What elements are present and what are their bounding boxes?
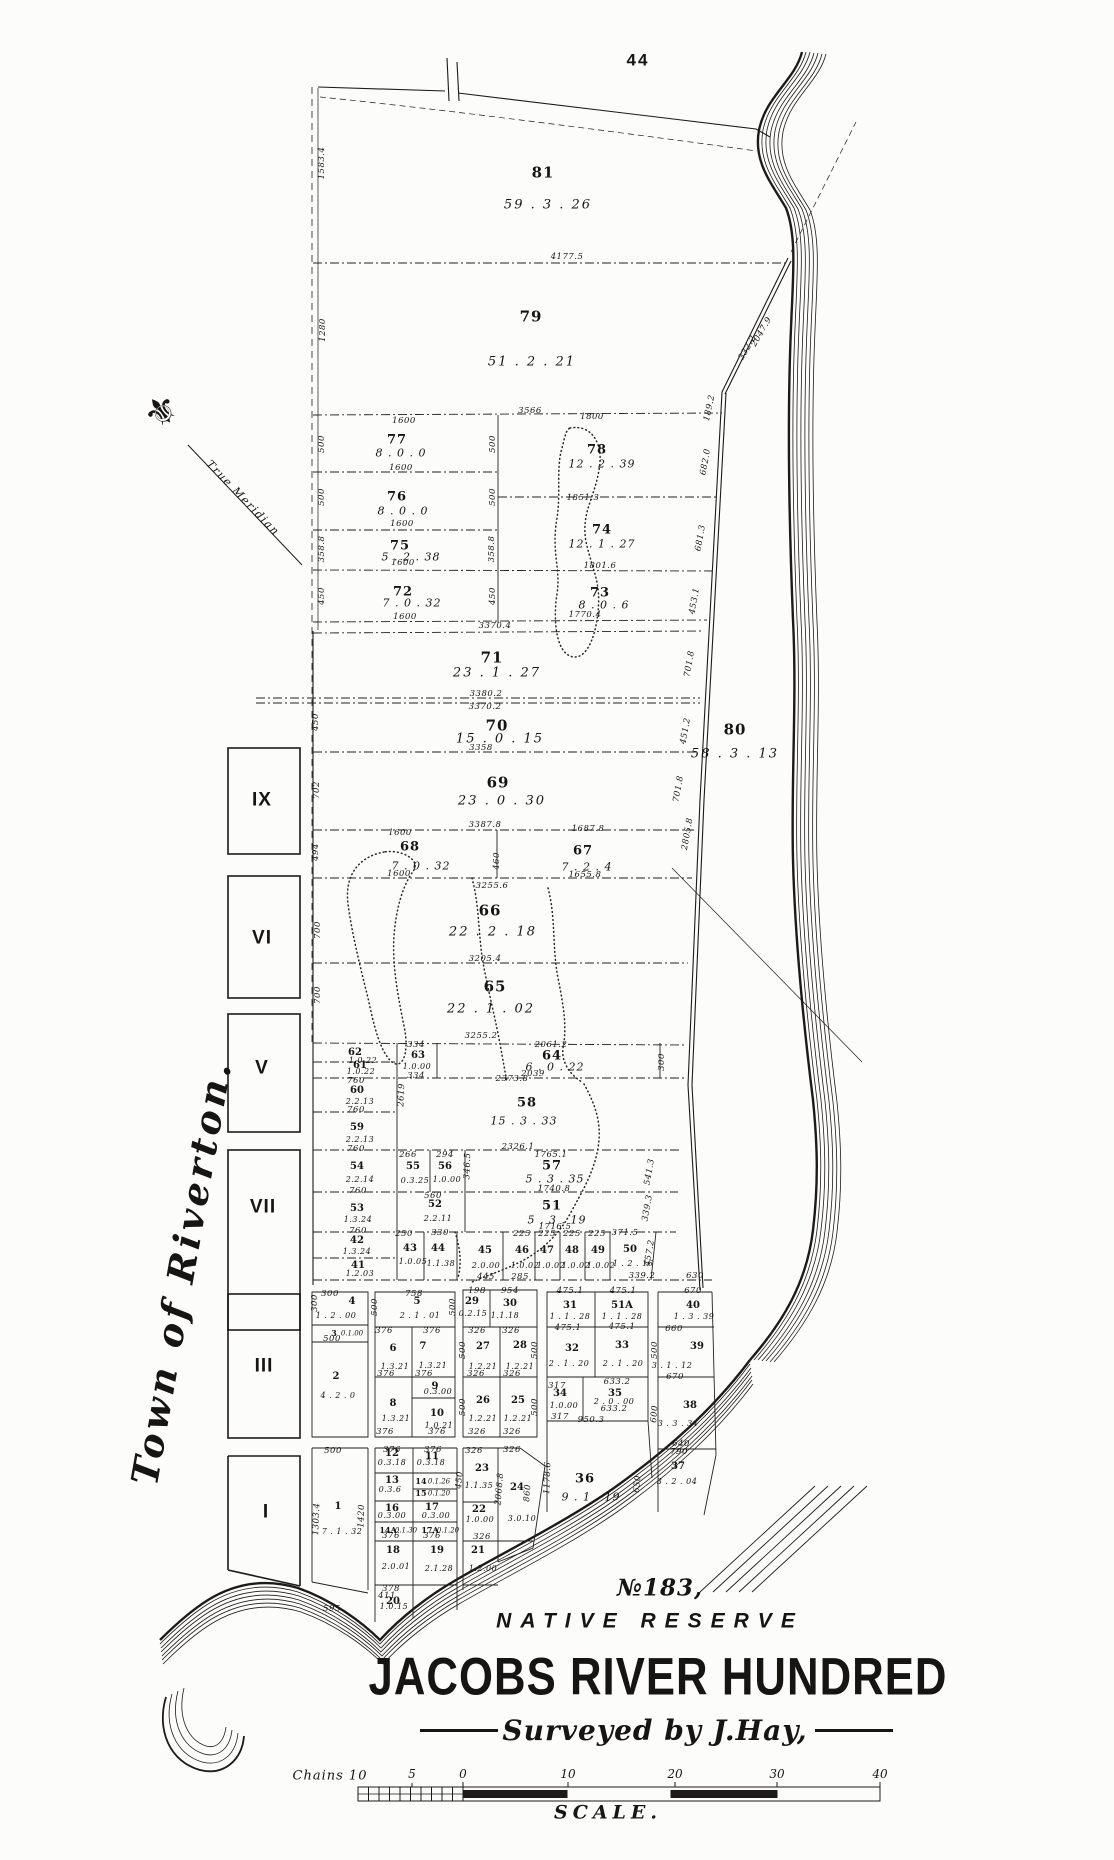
dimension-label: 3370.4: [479, 622, 512, 631]
dimension-label: 326: [468, 1428, 486, 1437]
lot-number: 2: [333, 1372, 340, 1382]
dimension-label: 326: [502, 1327, 520, 1336]
dimension-label: 376: [423, 1532, 441, 1541]
dimension-label: 4177.5: [551, 253, 584, 262]
dimension-label: 450: [312, 713, 321, 731]
lot-area: 22 . 1 . 02: [447, 1003, 535, 1016]
lot-number: 47: [540, 1246, 554, 1256]
dimension-label: 300: [321, 1290, 339, 1299]
lot-number: 33: [615, 1341, 629, 1351]
dimension-label: 326: [473, 1533, 491, 1542]
dimension-label: 500: [318, 488, 327, 506]
dimension-label: 450: [489, 587, 498, 605]
lot-area: 7 . 1 . 32: [322, 1528, 363, 1536]
lot-area: 4 . 2 . 0: [320, 1392, 355, 1400]
lot-area: 2.0.01: [382, 1563, 410, 1571]
dimension-label: 376: [423, 1327, 441, 1336]
dimension-label: 346.5: [463, 1152, 472, 1179]
dimension-label: 3205.4: [469, 955, 502, 964]
dimension-label: 3387.8: [469, 821, 502, 830]
dimension-label: 760: [347, 1106, 365, 1115]
lot-number: 26: [476, 1396, 490, 1406]
lot-area: 2.1.28: [425, 1565, 453, 1573]
lot-area: 0.3.00: [378, 1512, 406, 1520]
dimension-label: 702: [313, 781, 322, 799]
dimension-label: 700: [314, 986, 323, 1004]
map-drawing: [0, 0, 1114, 1860]
dimension-label: 376: [424, 1446, 442, 1455]
lot-number: 71: [481, 651, 504, 666]
lot-number: 28: [513, 1341, 527, 1351]
lot-area: 1.2.00: [469, 1565, 497, 1573]
dimension-label: 225: [538, 1230, 556, 1239]
dimension-label: 1303.4: [312, 1502, 322, 1535]
dimension-label: 376: [382, 1532, 400, 1541]
lot-area: 0.1.20: [428, 1491, 450, 1498]
dimension-label: 2373.8: [496, 1075, 529, 1084]
dimension-label: 3255.6: [476, 882, 509, 891]
dimension-label: 500: [318, 435, 327, 453]
lot-area: 2.2.14: [346, 1176, 374, 1184]
dimension-label: 1765.1: [535, 1151, 568, 1160]
lot-area: 2 . 1 . 20: [549, 1360, 590, 1368]
page-number: 44: [627, 52, 650, 69]
lot-number: 79: [520, 310, 543, 325]
lot-area: 15 . 3 . 33: [491, 1116, 558, 1127]
dimension-label: 500: [324, 1447, 342, 1456]
lot-area: 1.0.05: [399, 1258, 427, 1266]
dimension-label: 294: [436, 1151, 454, 1160]
dimension-label: 326: [465, 1447, 483, 1456]
dimension-label: 3255.2: [465, 1032, 498, 1041]
lot-number: 46: [515, 1246, 529, 1256]
dimension-label: 954: [501, 1287, 519, 1296]
dimension-label: 790: [670, 1448, 688, 1457]
scale-tick-label: 30: [769, 1768, 784, 1780]
lot-area: 1.2.21: [469, 1415, 497, 1423]
lot-number: 39: [690, 1342, 704, 1352]
lot-area: 2.0.00: [472, 1262, 500, 1270]
dimension-label: 1851.3: [567, 494, 600, 503]
lot-area: 3 . 3 . 34: [658, 1420, 699, 1428]
dimension-label: 1583.4: [318, 147, 327, 180]
lot-number: 6: [390, 1344, 397, 1354]
lot-area: 22 . 2 . 18: [449, 926, 537, 939]
dimension-label: 376: [375, 1327, 393, 1336]
lot-area: 1.3.24: [343, 1248, 371, 1256]
lot-number: 29: [465, 1297, 479, 1307]
dimension-label: 326: [503, 1446, 521, 1455]
dimension-label: 326: [467, 1370, 485, 1379]
dimension-label: 758: [405, 1290, 423, 1299]
lot-area: 1.0.02: [511, 1262, 539, 1270]
lot-number: 55: [406, 1162, 420, 1172]
dimension-label: 670: [666, 1373, 684, 1382]
dimension-label: 630: [686, 1272, 704, 1281]
dimension-label: 500: [459, 1341, 468, 1359]
dimension-label: 330: [431, 1229, 449, 1238]
lot-number: 57: [542, 1160, 562, 1173]
lot-area: 3 . 1 . 12: [652, 1362, 693, 1370]
dimension-label: 500: [371, 1298, 380, 1316]
native-reserve-title: NATIVE RESERVE: [496, 1611, 804, 1632]
dimension-label: 358.8: [488, 536, 497, 563]
lot-number: 43: [403, 1244, 417, 1254]
lot-number: 49: [591, 1246, 605, 1256]
dimension-label: 376: [415, 1370, 433, 1379]
dimension-label: 376: [428, 1428, 446, 1437]
lot-area: 9 . 1 . 19: [562, 1492, 621, 1503]
dimension-label: 3358: [469, 744, 493, 753]
lot-number: 69: [487, 776, 510, 791]
dimension-label: 1600: [388, 829, 412, 838]
lot-number: 58: [517, 1097, 537, 1110]
lot-number: 10: [430, 1409, 444, 1419]
lot-number: 80: [724, 723, 747, 738]
lot-number: 31: [563, 1301, 577, 1311]
lot-area: 1.0.00: [550, 1402, 578, 1410]
lot-area: 2 . 1 . 01: [400, 1312, 441, 1320]
lot-area: 12 . 2 . 39: [569, 459, 636, 470]
lot-number: 51: [542, 1200, 562, 1213]
lot-area: 1 . 1 . 28: [550, 1313, 591, 1321]
plan-number: №183,: [617, 1577, 703, 1600]
dimension-label: 1600: [389, 464, 413, 473]
dimension-label: 300: [658, 1053, 667, 1071]
lot-number: 50: [623, 1245, 637, 1255]
block-numeral: I: [263, 1503, 269, 1522]
dimension-label: 475.1: [609, 1323, 636, 1332]
dimension-label: 1801.6: [584, 562, 617, 571]
dimension-label: 1687.8: [572, 825, 605, 834]
lot-area: 0.3.18: [378, 1459, 406, 1467]
lot-area: 1 . 3 . 39: [674, 1313, 715, 1321]
lot-area: 0.1.26: [428, 1479, 450, 1486]
lot-area: 1.1.35: [465, 1482, 493, 1490]
lot-area: 7 . 0 . 32: [383, 598, 442, 609]
scale-tick-label: 0: [459, 1768, 467, 1780]
dimension-label: 326: [503, 1370, 521, 1379]
dimension-label: 500: [323, 1335, 341, 1344]
lot-area: 0.3.00: [424, 1388, 452, 1396]
lot-number: 40: [686, 1301, 700, 1311]
town-block-boxes: [228, 748, 300, 1586]
dimension-label: 760: [349, 1187, 367, 1196]
scale-tick-label: 40: [872, 1768, 887, 1780]
lot-area: 1.2.03: [346, 1270, 374, 1278]
lot-area: 0.3.18: [417, 1459, 445, 1467]
dimension-label: 266: [399, 1151, 417, 1160]
dimension-label: 760: [347, 1077, 365, 1086]
lot-area: 0.3.25: [401, 1177, 429, 1185]
lot-area: 51 . 2 . 21: [488, 356, 576, 369]
lot-area: 1.0.00: [466, 1516, 494, 1524]
dimension-label: 700: [314, 921, 323, 939]
lot-area: 3.0.10: [508, 1515, 536, 1523]
dimension-label: 326: [468, 1327, 486, 1336]
block-numeral: VII: [250, 1198, 276, 1217]
lot-number: 7: [420, 1342, 427, 1352]
lot-area: 0.3.6: [379, 1486, 402, 1494]
dimension-label: 3370.2: [469, 703, 502, 712]
lot-number: 38: [683, 1401, 697, 1411]
lot-number: 60: [350, 1086, 364, 1096]
dimension-label: 633.2: [604, 1378, 631, 1387]
dimension-label: 760: [349, 1227, 367, 1236]
surveyor-credit: Surveyed by J.Hay,: [502, 1717, 807, 1745]
lot-number: 52: [428, 1200, 442, 1210]
dimension-label: 475.1: [557, 1287, 584, 1296]
lot-number: 78: [587, 444, 607, 457]
dimension-label: 494: [312, 843, 321, 861]
dimension-label: 660: [665, 1325, 683, 1334]
dimension-label: 1600: [392, 417, 416, 426]
lot-area: 12 . 1 . 27: [569, 539, 636, 550]
lot-number: 59: [350, 1123, 364, 1133]
lot-area: 1.0.15: [380, 1603, 408, 1611]
dimension-label: 600: [650, 1405, 660, 1423]
lot-number: 30: [503, 1299, 517, 1309]
dimension-label: 500: [459, 1398, 468, 1416]
lot-area: 3 . 2 . 04: [657, 1478, 698, 1486]
scale-tick-label: 10: [560, 1768, 575, 1780]
dimension-label: 358.8: [318, 536, 327, 563]
dimension-label: 198: [468, 1287, 486, 1296]
lot-area: 0.1.00: [341, 1331, 363, 1338]
dimension-label: 1655.8: [569, 871, 602, 880]
lot-number: 48: [565, 1246, 579, 1256]
dimension-label: 595: [323, 1605, 341, 1614]
dimension-label: 670: [684, 1287, 702, 1296]
lot-number: 8: [390, 1399, 397, 1409]
lot-number: 14: [415, 1477, 426, 1485]
lot-area: 8 . 0 . 0: [376, 448, 427, 459]
lot-number: 56: [438, 1162, 452, 1172]
dimension-label: 460: [493, 852, 502, 870]
dimension-label: 376: [376, 1428, 394, 1437]
dimension-label: 500: [531, 1341, 540, 1359]
dimension-label: 950.3: [578, 1416, 605, 1425]
lot-number: 15: [415, 1489, 426, 1497]
lot-number: 53: [350, 1204, 364, 1214]
dimension-label: 334: [407, 1072, 425, 1081]
lot-area: 1.3.24: [344, 1216, 372, 1224]
lot-area: 0.2.15: [459, 1310, 487, 1318]
dimension-label: 1280: [319, 318, 328, 342]
dimension-label: 760: [347, 1145, 365, 1154]
dimension-label: 1770.4: [569, 611, 602, 620]
dimension-label: 1178.6: [543, 1461, 553, 1494]
lot-area: 0.3.00: [422, 1512, 450, 1520]
lot-number: 1: [335, 1502, 342, 1512]
lot-area: 58 . 3 . 13: [691, 748, 779, 761]
block-numeral: V: [255, 1059, 269, 1078]
scale-tick-label: 5: [408, 1768, 416, 1780]
dimension-label: 317: [551, 1413, 569, 1422]
lot-number: 4: [349, 1297, 356, 1307]
dimension-label: 250: [395, 1230, 413, 1239]
dimension-label: 1600: [387, 870, 411, 879]
dimension-label: 1600: [391, 559, 415, 568]
lot-area: 1.1.38: [427, 1260, 455, 1268]
dimension-label: 1600: [393, 613, 417, 622]
title-rule-right: [815, 1729, 893, 1732]
lot-area: 59 . 3 . 26: [504, 199, 592, 212]
dimension-label: 1600: [390, 520, 414, 529]
dimension-label: 560: [424, 1192, 442, 1201]
lot-area: 2 . 1 . 20: [603, 1360, 644, 1368]
dimension-label: 2326.1: [502, 1143, 535, 1152]
dimension-label: 633.2: [601, 1405, 628, 1414]
dimension-label: 376: [377, 1370, 395, 1379]
lot-number: 22: [472, 1505, 486, 1515]
lot-number: 36: [575, 1473, 595, 1486]
dimension-label: 225: [513, 1230, 531, 1239]
dimension-label: 371.5: [612, 1229, 639, 1238]
dimension-label: 500: [531, 1398, 540, 1416]
lot-number: 74: [592, 524, 612, 537]
dimension-label: 2619: [397, 1083, 406, 1107]
dimension-label: 475.1: [610, 1287, 637, 1296]
lot-number: 51A: [611, 1301, 633, 1311]
lot-area: 1.3.21: [382, 1415, 410, 1423]
lot-number: 45: [478, 1246, 492, 1256]
dimension-label: 445: [477, 1273, 495, 1282]
dimension-label: 860: [523, 1484, 533, 1502]
dimension-label: 500: [651, 1341, 660, 1359]
lot-number: 32: [565, 1344, 579, 1354]
title-rule-left: [420, 1729, 498, 1732]
dimension-label: 334: [407, 1041, 425, 1050]
lot-number: 68: [400, 841, 420, 854]
dimension-label: 317: [548, 1382, 566, 1391]
lot-number: 65: [484, 980, 507, 995]
dimension-label: 2061.2: [535, 1041, 568, 1050]
scale-units-label: Chains 10: [293, 1770, 368, 1783]
dimension-label: 500: [449, 1298, 458, 1316]
dimension-label: 376: [383, 1446, 401, 1455]
lot-area: 1 . 1 . 28: [602, 1313, 643, 1321]
lot-area: 23 . 1 . 27: [453, 667, 541, 680]
lot-area: 23 . 0 . 30: [458, 795, 546, 808]
dimension-label: 300: [311, 1294, 320, 1312]
dimension-label: 450: [318, 587, 327, 605]
scale-caption: SCALE.: [554, 1804, 662, 1823]
lot-area: 8 . 0 . 0: [378, 506, 429, 517]
lot-number: 76: [387, 491, 407, 504]
reserve-boundary: [312, 58, 862, 1290]
dimension-label: 500: [489, 435, 498, 453]
dimension-label: 3380.2: [470, 690, 503, 699]
lot-number: 37: [671, 1462, 685, 1472]
dimension-label: 285: [511, 1273, 529, 1282]
block-numeral: VI: [252, 929, 272, 948]
lot-area: 2.2.11: [424, 1215, 452, 1223]
lot-area: 1.1.18: [491, 1312, 519, 1320]
lot-number: 21: [471, 1546, 485, 1556]
lot-number: 18: [386, 1546, 400, 1556]
dimension-label: 475.1: [555, 1324, 582, 1333]
block-numeral: III: [255, 1357, 274, 1376]
lot-number: 77: [387, 434, 407, 447]
lot-area: 1.0.02: [587, 1262, 615, 1270]
dimension-label: 500: [489, 488, 498, 506]
lot-number: 42: [350, 1236, 364, 1246]
dimension-label: 650: [633, 1475, 643, 1493]
lot-area: 1.2.21: [504, 1415, 532, 1423]
dimension-label: 1420: [357, 1504, 366, 1528]
block-numeral: IX: [252, 791, 272, 810]
dimension-label: 1800: [580, 413, 604, 422]
scale-tick-label: 20: [667, 1768, 682, 1780]
lot-number: 23: [475, 1464, 489, 1474]
lot-area: 1 . 2 . 00: [316, 1312, 357, 1320]
map-title: JACOBS RIVER HUNDRED: [368, 1651, 947, 1704]
lot-number: 67: [573, 845, 593, 858]
dimension-label: 225: [563, 1230, 581, 1239]
dimension-label: 450: [455, 1471, 465, 1489]
lot-area: 1.0.00: [433, 1176, 461, 1184]
lot-number: 44: [431, 1244, 445, 1254]
lot-number: 81: [532, 166, 555, 181]
lot-number: 66: [479, 904, 502, 919]
dimension-label: 1740.8: [538, 1185, 571, 1194]
scale-bar: [358, 1782, 880, 1801]
dimension-label: 339.2: [629, 1272, 656, 1281]
lot-number: 19: [430, 1546, 444, 1556]
dimension-label: 225: [588, 1230, 606, 1239]
dimension-label: 411: [378, 1592, 396, 1601]
lot-number: 54: [350, 1162, 364, 1172]
lot-number: 27: [476, 1342, 490, 1352]
lot-number: 63: [411, 1051, 425, 1061]
survey-map-page: 44 ⚜ True Meridian Town of Riverton. IXV…: [0, 0, 1114, 1860]
lot-number: 25: [511, 1396, 525, 1406]
dimension-label: 3566: [518, 407, 542, 416]
dimension-label: 326: [503, 1428, 521, 1437]
